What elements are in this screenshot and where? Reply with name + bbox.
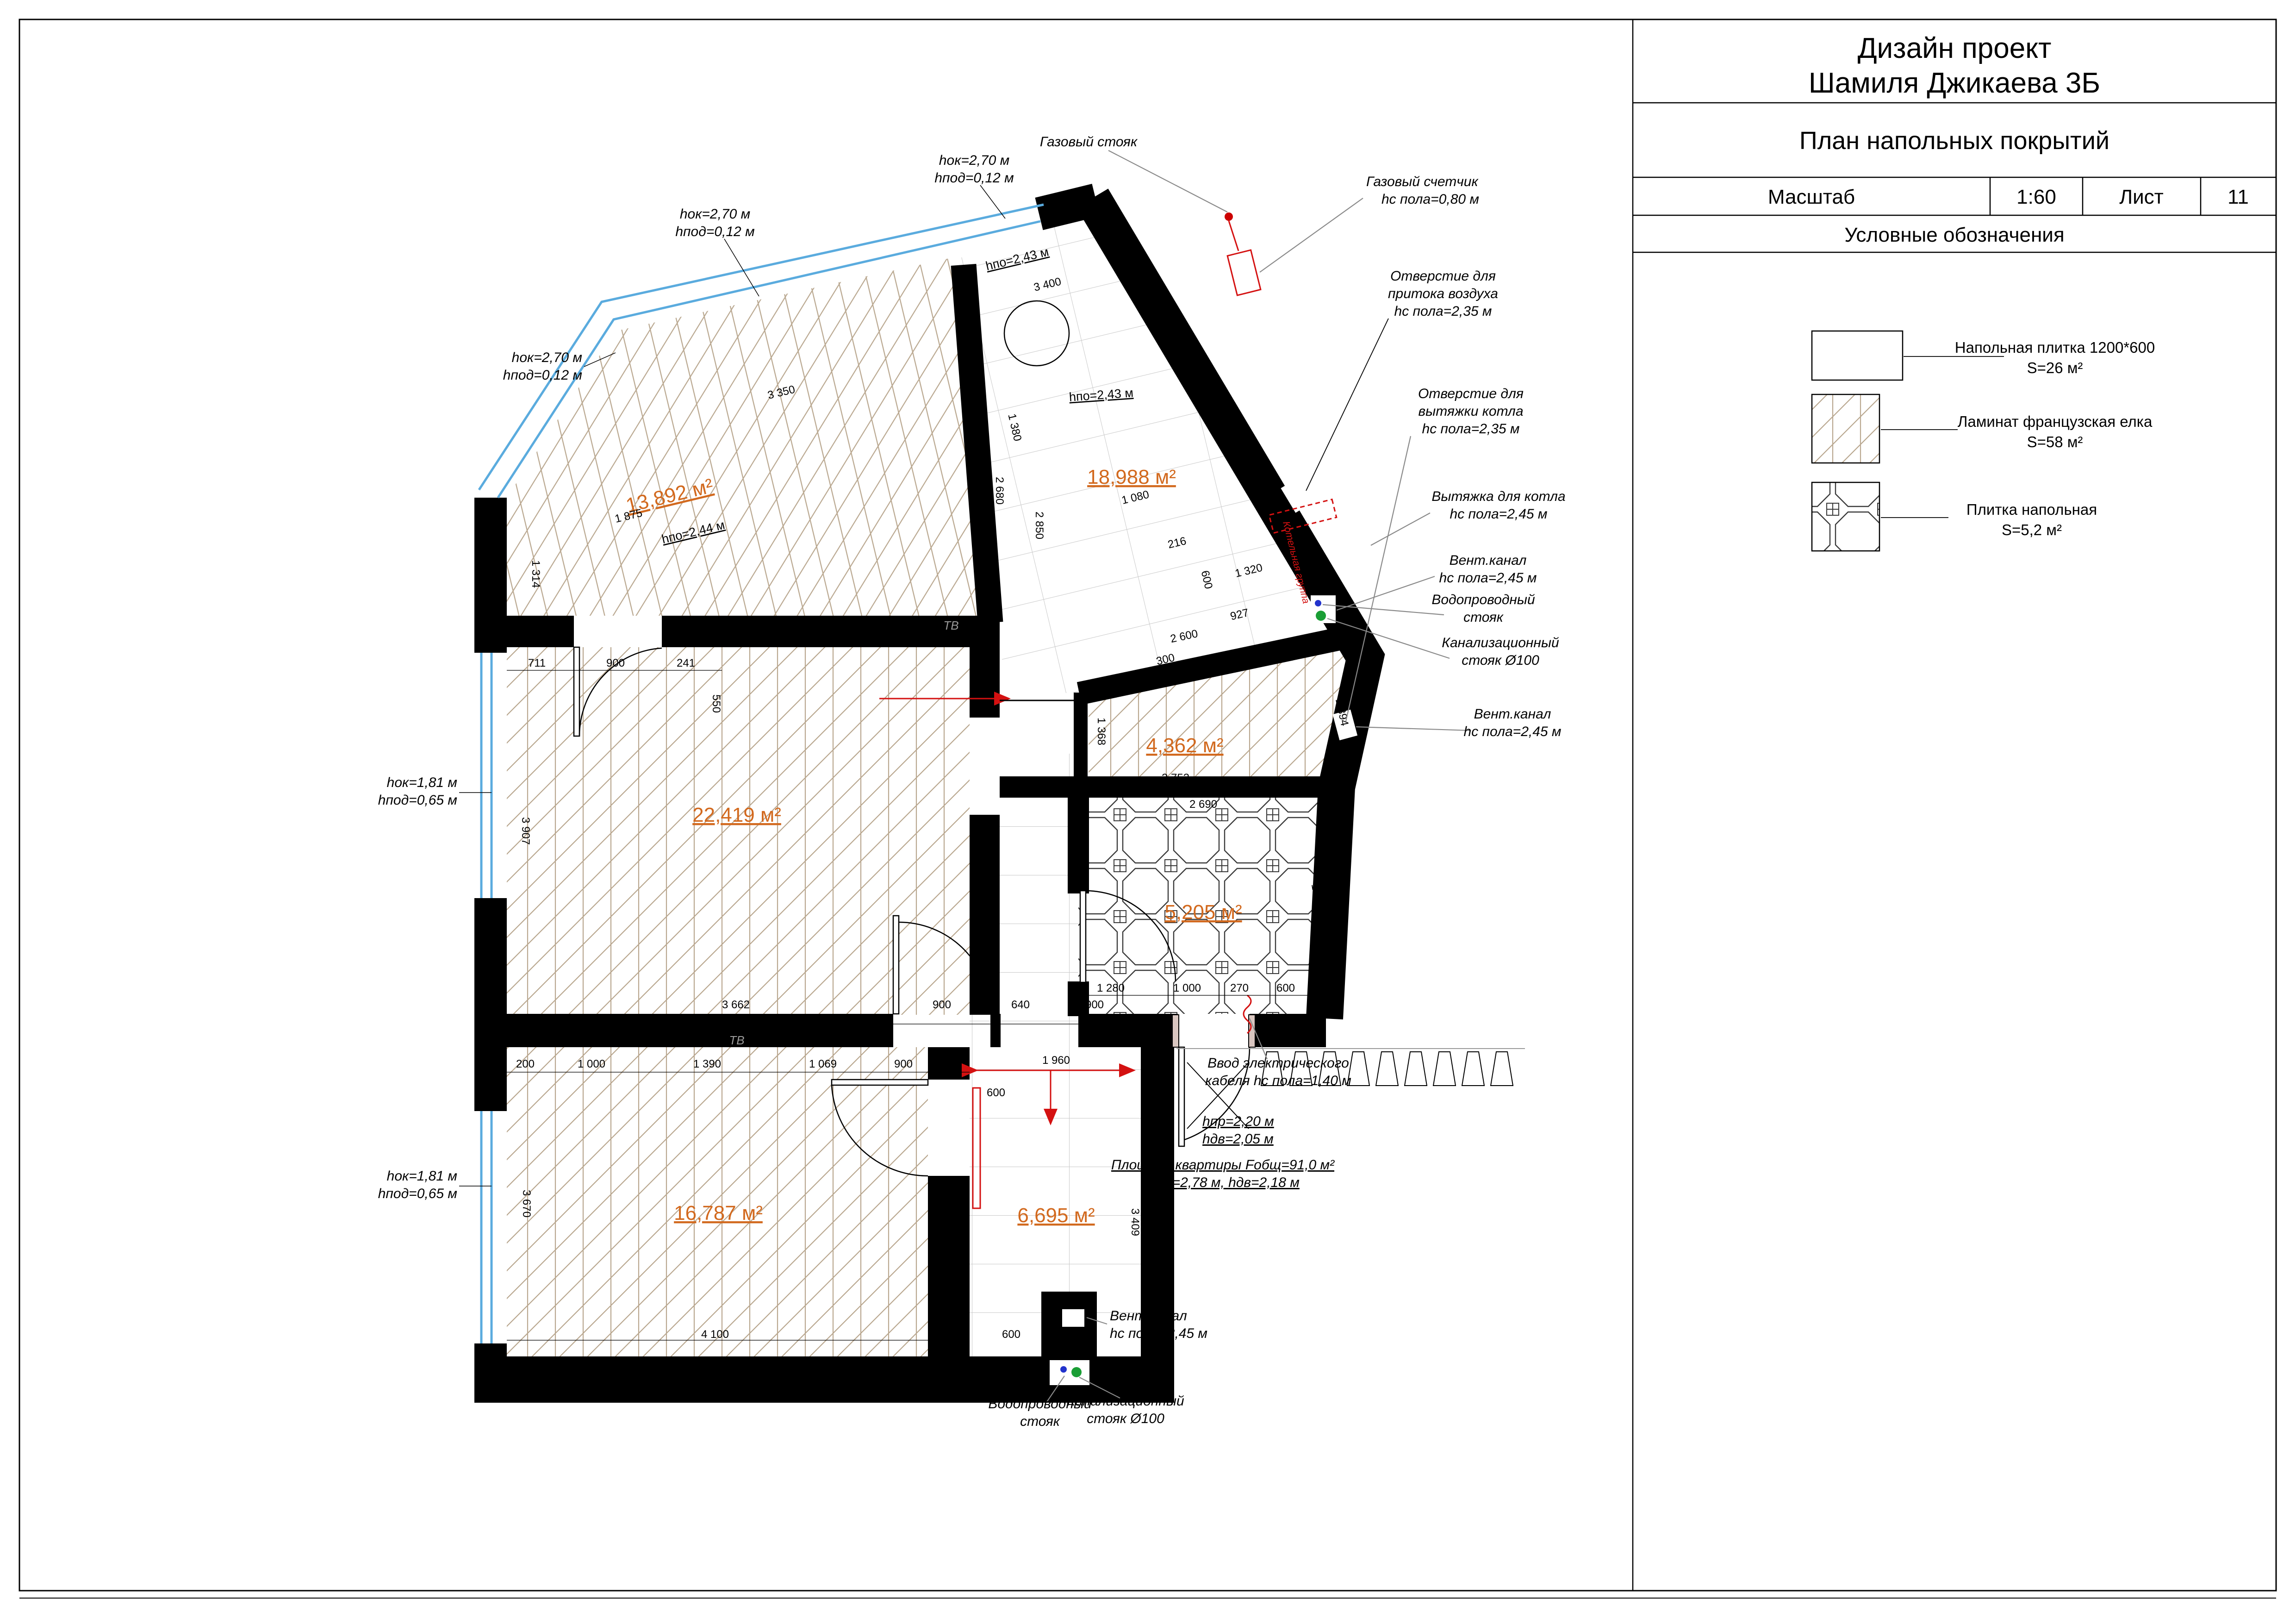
dim: 711 [528, 657, 546, 669]
dim: 1 960 [1042, 1054, 1070, 1067]
dim: 200 [516, 1058, 535, 1070]
dim: 3 409 [1129, 1208, 1141, 1236]
ann-water2-line2: стояк [1020, 1414, 1061, 1429]
legend-tile-name: Напольная плитка 1200*600 [1955, 339, 2155, 356]
legend-swatch-laminate [1812, 394, 1879, 463]
ann-vent3-line2: hс пола=2,45 м [1110, 1326, 1207, 1341]
vent-gap-3 [1062, 1309, 1084, 1327]
ann-exhaust-line3: hс пола=2,35 м [1422, 421, 1520, 437]
dim: 900 [606, 657, 625, 669]
ann-hood-line1: Вытяжка для котла [1431, 489, 1565, 504]
ann-exhaust-line1: Отверстие для [1418, 386, 1524, 401]
dim: 2 680 [993, 477, 1006, 505]
dim: 4 100 [701, 1328, 729, 1341]
project-title-line1: Дизайн проект [1858, 32, 2052, 64]
ann-air-line1: Отверстие для [1390, 269, 1496, 284]
ann-vent1-line1: Вент.канал [1450, 553, 1527, 568]
dim: 1 000 [578, 1058, 605, 1070]
project-title-line2: Шамиля Джикаева 3Б [1809, 67, 2100, 99]
dim: 900 [894, 1058, 913, 1070]
label-living-area: 22,419 м² [692, 804, 781, 826]
label-corridor-area: 6,695 м² [1017, 1204, 1095, 1227]
ann-window-left2-line2: hпод=0,65 м [378, 1186, 457, 1201]
dim: 550 [710, 694, 722, 713]
label-tv-living: ТВ [943, 618, 958, 632]
dim: 900 [933, 999, 951, 1011]
ann-hood-line2: hс пола=2,45 м [1450, 506, 1548, 522]
legend-swatch-tile [1812, 331, 1903, 380]
sewer-riser-dot-bottom [1071, 1367, 1082, 1377]
ann-sewer2-line2: стояк Ø100 [1087, 1411, 1164, 1426]
water-riser-dot-right [1315, 600, 1321, 606]
ann-vent1-line2: hс пола=2,45 м [1439, 570, 1537, 586]
floor-plan-sheet: Дизайн проект Шамиля Джикаева 3Б План на… [0, 0, 2296, 1624]
label-tv-bedroom: ТВ [729, 1033, 744, 1047]
entry-door-leaf [1179, 1047, 1184, 1146]
door-leaf-living [893, 916, 899, 1014]
dim: 1 069 [809, 1058, 837, 1070]
legend-floor-tile-area: S=5,2 м² [2002, 521, 2062, 538]
ann-vent2-line2: hс пола=2,45 м [1464, 724, 1562, 739]
ann-entry-door-line2: hдв=2,05 м [1202, 1131, 1274, 1147]
door-leaf-kitchen [574, 647, 579, 736]
ann-gas-meter-line1: Газовый счетчик [1366, 174, 1479, 189]
dim: 600 [987, 1087, 1005, 1099]
ann-entry-door-line1: hпр=2,20 м [1202, 1114, 1274, 1129]
ann-gas-meter-line2: hс пола=0,80 м [1381, 192, 1479, 207]
dim: 1 000 [1173, 982, 1201, 994]
ann-sewer2-line1: Канализационный [1067, 1393, 1184, 1409]
dim: 600 [1276, 982, 1295, 994]
dim: 2 850 [1033, 512, 1045, 539]
dim: 241 [677, 657, 695, 669]
ann-window-top1-line1: hок=2,70 м [680, 206, 750, 222]
door-leaf-vestibule [1080, 891, 1086, 982]
ann-window-top3-line1: hок=2,70 м [512, 350, 582, 365]
legend: Напольная плитка 1200*600 S=26 м² Ламина… [1812, 331, 2155, 551]
ann-sewer1-line1: Канализационный [1442, 635, 1559, 650]
ann-air-line3: hс пола=2,35 м [1394, 304, 1492, 319]
legend-laminate-name: Ламинат французская елка [1958, 413, 2153, 430]
ann-vent3-line1: Вент.канал [1110, 1308, 1187, 1324]
ann-window-left1-line2: hпод=0,65 м [378, 793, 457, 808]
ann-air-line2: притока воздуха [1388, 286, 1498, 301]
label-vestibule-area: 5,205 м² [1164, 901, 1242, 924]
dim: 2 690 [1189, 798, 1217, 811]
sheet-label: Лист [2119, 186, 2164, 208]
gas-meter [1227, 250, 1261, 295]
ann-apartment-heights: hэт=2,78 м, hдв=2,18 м [1146, 1175, 1300, 1190]
ann-cable-line1: Ввод электрического [1207, 1056, 1349, 1071]
title-block: Дизайн проект Шамиля Джикаева 3Б План на… [1633, 32, 2276, 252]
label-hall-area: 4,362 м² [1146, 734, 1223, 757]
floor-vestibule [1078, 787, 1337, 1014]
ann-window-left1-line1: hок=1,81 м [387, 775, 457, 790]
legend-title: Условные обозначения [1844, 224, 2064, 246]
scale-label: Масштаб [1768, 186, 1855, 208]
ann-window-top2-line1: hок=2,70 м [939, 153, 1009, 168]
scale-value: 1:60 [2016, 186, 2056, 208]
ann-gas-riser: Газовый стояк [1040, 134, 1138, 150]
ann-cable-line2: кабеля hс пола=1,40 м [1205, 1073, 1351, 1088]
dim: 2 752 [1162, 772, 1189, 784]
legend-laminate-area: S=58 м² [2027, 433, 2083, 450]
dim: 1 390 [693, 1058, 721, 1070]
legend-tile-area: S=26 м² [2027, 359, 2083, 376]
floor-kitchen [507, 257, 983, 616]
ann-window-top2-line2: hпод=0,12 м [934, 170, 1014, 186]
sewer-riser-dot-right [1316, 611, 1326, 621]
ann-apartment-area: Площадь квартиры Fобщ=91,0 м² [1111, 1157, 1335, 1173]
dim: 3 662 [722, 999, 750, 1011]
riser-niche-bottom [1050, 1360, 1089, 1385]
ann-water1-line1: Водопроводный [1431, 592, 1535, 607]
ann-water1-line2: стояк [1463, 610, 1504, 625]
dim: 2 500 [941, 1218, 954, 1245]
dim: 2 500 [856, 633, 884, 645]
ann-window-top3-line2: hпод=0,12 м [503, 368, 582, 383]
label-bedroom-area: 16,787 м² [674, 1202, 763, 1224]
dim: 900 [1085, 999, 1104, 1011]
ann-window-top1-line2: hпод=0,12 м [675, 224, 754, 239]
water-riser-dot-bottom [1060, 1366, 1067, 1373]
door-leaf-bedroom [832, 1080, 928, 1085]
ann-window-left2-line1: hок=1,81 м [387, 1168, 457, 1184]
dim: 600 [1002, 1328, 1020, 1341]
legend-floor-tile-name: Плитка напольная [1966, 501, 2097, 518]
drawing-title: План напольных покрытий [1799, 127, 2109, 155]
gas-riser-dot [1225, 212, 1233, 221]
ann-vent2-line1: Вент.канал [1474, 706, 1551, 722]
dim: 270 [1230, 982, 1249, 994]
sheet-number: 11 [2228, 186, 2249, 208]
dim: 1 368 [1095, 718, 1108, 745]
dim: 3 670 [520, 1190, 533, 1218]
entry-jamb-left [1172, 1015, 1179, 1047]
dim: 640 [1011, 999, 1030, 1011]
legend-swatch-floor-tile [1812, 482, 1879, 551]
ann-sewer1-line2: стояк Ø100 [1462, 653, 1539, 668]
dim: 1 280 [1097, 982, 1125, 994]
dim: 3 907 [519, 817, 532, 845]
ann-exhaust-line2: вытяжки котла [1418, 404, 1523, 419]
dim: 1 314 [529, 560, 542, 588]
label-hall-top-area: 18,988 м² [1087, 466, 1176, 488]
